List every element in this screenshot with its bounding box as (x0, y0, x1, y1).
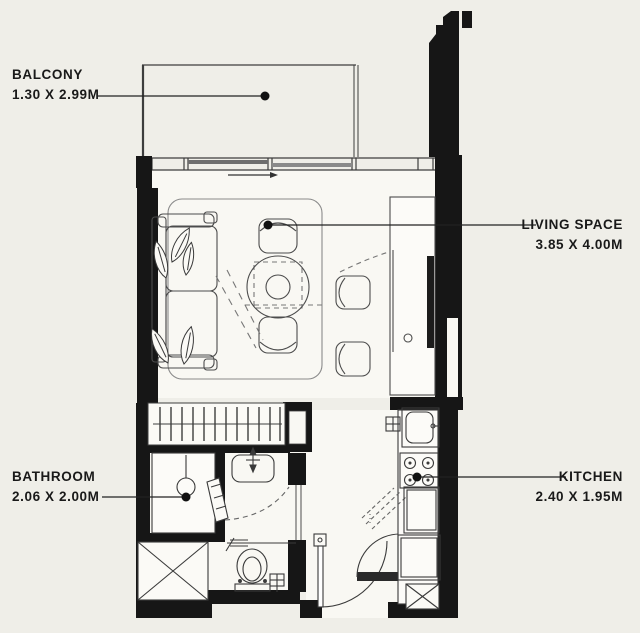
tv (427, 256, 434, 348)
balcony-label: BALCONY 1.30 X 2.99M (12, 66, 100, 104)
kitchen-x-box (406, 584, 439, 609)
living-leader-dot (264, 221, 273, 230)
floor-plan: BALCONY 1.30 X 2.99M LIVING SPACE 3.85 X… (0, 0, 640, 633)
wall-left-window-block (136, 156, 152, 188)
bathroom-dimensions: 2.06 X 2.00M (12, 488, 100, 506)
duct-shaft (289, 411, 306, 444)
wall-shower-bottom (148, 533, 225, 542)
kitchen-name: KITCHEN (535, 468, 623, 486)
wall-top-right-finger (462, 11, 472, 28)
storage-x-box (138, 542, 208, 600)
balcony-name: BALCONY (12, 66, 100, 84)
wall-recess-slot (447, 318, 458, 397)
sliding-panel-2 (272, 163, 352, 167)
kitchen-label: KITCHEN 2.40 X 1.95M (535, 468, 623, 506)
balcony-leader-dot (261, 92, 270, 101)
bathroom-leader-dot (182, 493, 191, 502)
entrance-threshold (322, 600, 388, 618)
wall-toilet-bottom (208, 590, 300, 604)
shower-area (152, 453, 215, 533)
wall-bath-right-upper (288, 453, 306, 485)
sliding-panel-1 (188, 160, 268, 164)
wardrobe (148, 403, 285, 445)
kitchen-leader-dot (413, 473, 422, 482)
balcony-dimensions: 1.30 X 2.99M (12, 86, 100, 104)
kitchen-dimensions: 2.40 X 1.95M (535, 488, 623, 506)
living-space-dimensions: 3.85 X 4.00M (522, 236, 623, 254)
wall-top-right-mass (429, 11, 459, 157)
wall-bottom-left (136, 600, 212, 618)
wall-bath-right-lower (288, 540, 306, 592)
bathroom-label: BATHROOM 2.06 X 2.00M (12, 468, 100, 506)
living-space-name: LIVING SPACE (522, 216, 623, 234)
wall-right-kitchen (438, 410, 458, 604)
bathroom-name: BATHROOM (12, 468, 100, 486)
living-space-label: LIVING SPACE 3.85 X 4.00M (522, 216, 623, 254)
balcony-outline (142, 65, 358, 157)
wall-left-living (137, 188, 158, 404)
